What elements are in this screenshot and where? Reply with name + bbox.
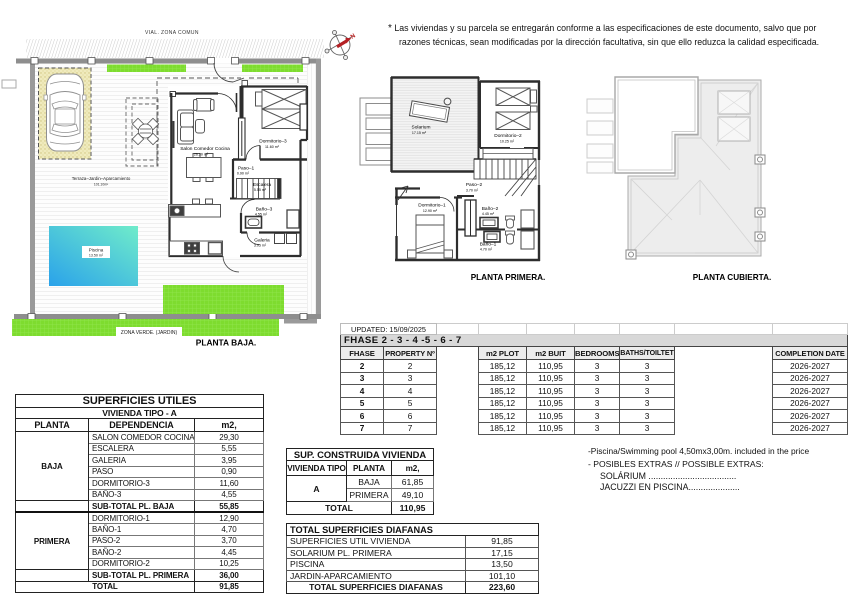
svg-text:PLANTA CUBIERTA.: PLANTA CUBIERTA. <box>693 273 772 282</box>
svg-text:13.50 m²: 13.50 m² <box>89 254 104 258</box>
svg-text:PLANTA BAJA.: PLANTA BAJA. <box>196 338 256 348</box>
svg-text:VIAL. ZONA COMUN: VIAL. ZONA COMUN <box>145 30 199 36</box>
svg-text:11.60 m²: 11.60 m² <box>265 145 280 149</box>
svg-text:Piscina: Piscina <box>89 248 104 253</box>
svg-text:Escalera: Escalera <box>253 182 271 187</box>
svg-text:Salon Comedor Cocina: Salon Comedor Cocina <box>180 146 230 152</box>
svg-text:4.55 m²: 4.55 m² <box>255 213 268 217</box>
svg-text:12.90 m²: 12.90 m² <box>423 209 438 213</box>
svg-text:ZONA VERDE. (JARDIN): ZONA VERDE. (JARDIN) <box>121 330 178 336</box>
svg-text:4.70 m²: 4.70 m² <box>480 248 493 252</box>
svg-text:Dormitorio–3: Dormitorio–3 <box>259 139 287 145</box>
svg-text:PLANTA PRIMERA.: PLANTA PRIMERA. <box>471 273 546 282</box>
svg-text:Paso–2: Paso–2 <box>466 182 483 188</box>
svg-text:3.95 m²: 3.95 m² <box>254 244 267 248</box>
svg-text:17.15 m²: 17.15 m² <box>412 131 427 135</box>
svg-text:0.90 m²: 0.90 m² <box>237 172 250 176</box>
svg-text:Dormitorio–1: Dormitorio–1 <box>418 203 446 209</box>
svg-text:N: N <box>349 32 357 41</box>
svg-text:Dormitorio–2: Dormitorio–2 <box>494 133 522 139</box>
svg-text:Terraza–Jardin–Aparcamiento: Terraza–Jardin–Aparcamiento <box>72 176 131 181</box>
svg-text:5.55 m²: 5.55 m² <box>254 188 267 192</box>
svg-text:Solarium: Solarium <box>412 125 431 131</box>
svg-text:10.25 m²: 10.25 m² <box>500 140 515 144</box>
svg-text:101.10m²: 101.10m² <box>94 183 109 187</box>
svg-text:3.70 m²: 3.70 m² <box>466 189 479 193</box>
svg-text:26.30 m²: 26.30 m² <box>194 153 209 157</box>
svg-text:4.45 m²: 4.45 m² <box>482 212 495 216</box>
